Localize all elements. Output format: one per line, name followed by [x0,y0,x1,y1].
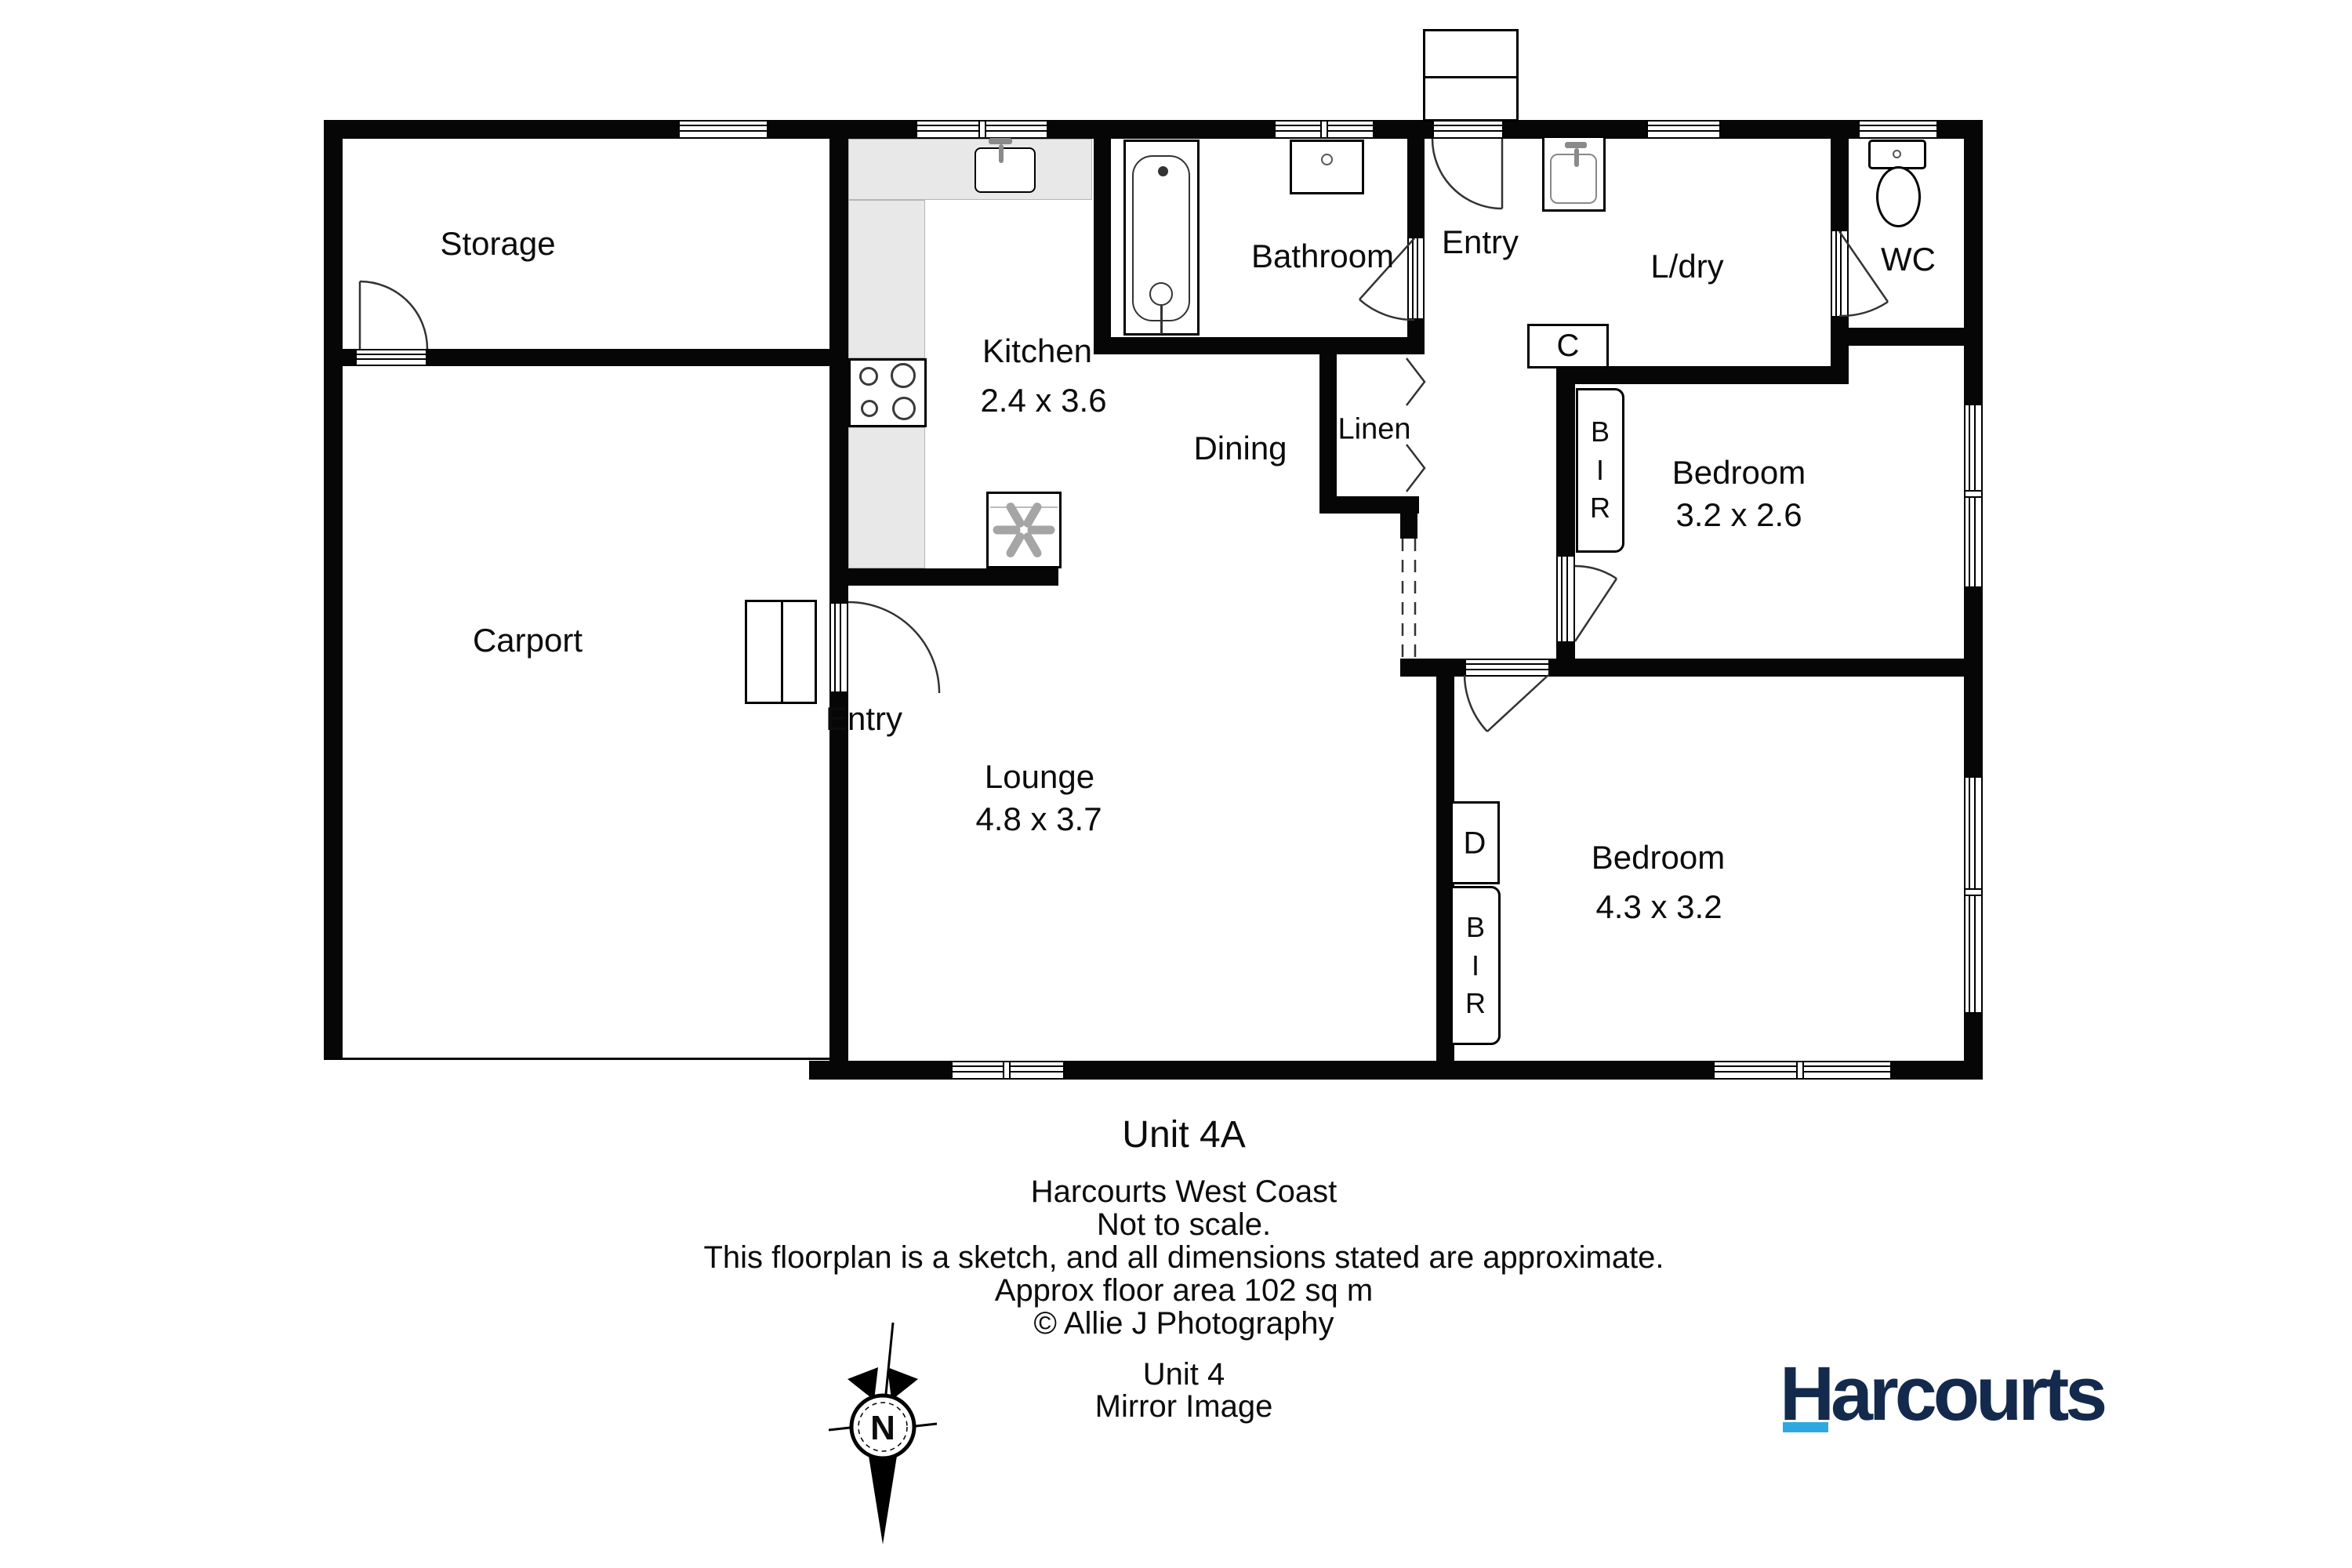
door-frame [1407,237,1425,320]
faucet-icon [1574,148,1579,167]
wall [1556,366,1849,384]
footer-disclaimer: This floorplan is a sketch, and all dime… [703,1240,1664,1276]
wall [1550,659,1983,677]
room-label-entry-top: Entry [1442,223,1519,261]
vanity-drain-icon [1321,154,1333,165]
window [1964,404,1983,588]
kitchen-sink [975,147,1036,193]
room-label-bedroom1: Bedroom [1672,454,1806,492]
wall [324,120,678,139]
wall [809,1061,951,1080]
footer-area: Approx floor area 102 sq m [995,1273,1373,1308]
room-label-kitchen: Kitchen [982,332,1092,370]
faucet-icon [989,138,1012,144]
window-mullion [1965,490,1981,498]
wall [1094,139,1111,354]
window-mullion [1965,888,1981,896]
window-mullion [978,122,986,137]
laundry-tub-basin [1550,154,1597,204]
wall [829,693,848,1061]
room-label-bedroom2: Bedroom [1592,839,1725,877]
window [1646,120,1721,139]
stove-burner [859,367,878,386]
faucet-icon [999,144,1004,163]
hall-opening-dashed [1403,539,1415,659]
kitchen-counter [848,200,925,358]
door-swing-bedroom2 [1465,675,1548,731]
door-frame [1831,230,1849,318]
wall [768,120,916,139]
harcourts-logo-accent-bar [1783,1422,1828,1432]
door-swing-front-entry [1432,139,1502,209]
bath-drain-line [1160,306,1163,334]
room-label-lounge: Lounge [985,758,1094,796]
compass-north-label: N [870,1409,895,1448]
room-label-wc: WC [1881,241,1936,278]
wall [324,120,343,1060]
room-dims-kitchen: 2.4 x 3.6 [980,382,1106,419]
stove-burner [891,363,916,388]
wood-heater [986,492,1062,568]
window [951,1061,1065,1080]
heater-detail-line [990,506,1058,508]
stove-burner [892,397,916,420]
door-frame [829,602,848,693]
closet-c-label: C [1557,328,1580,364]
bath-drain-icon [1149,282,1173,306]
bir-label: BIR [1588,413,1613,528]
toilet-bowl [1876,166,1921,227]
footer-mirror-note: Mirror Image [1095,1389,1273,1425]
room-dims-lounge: 4.8 x 3.7 [975,800,1102,838]
wall [1964,120,1983,404]
footer-unit-title: Unit 4A [1122,1113,1245,1156]
shower-head-icon [1158,166,1168,176]
stove-burner [861,400,878,417]
window [916,120,1048,139]
kitchen-counter [848,427,925,568]
wall [1892,1061,1983,1080]
wall [829,137,848,602]
wall [1400,496,1417,539]
wall [1048,120,1274,139]
room-label-storage: Storage [440,225,555,263]
window [1964,776,1983,1014]
dresser-label: D [1464,826,1486,862]
footer-unit-alt: Unit 4 [1143,1357,1225,1392]
porch-steps [1423,29,1519,122]
floorplan-canvas: C BIR D BIR [0,0,2352,1568]
door-frame [355,349,427,366]
room-label-dining: Dining [1193,430,1287,467]
entry-step-line [781,600,783,704]
door-frame [1556,555,1575,643]
wall [1319,354,1337,514]
wall [1831,328,1983,346]
door-swing-bedroom1 [1575,566,1617,641]
wall [1094,337,1425,354]
window [678,120,768,139]
window-mullion [1796,1062,1804,1078]
room-label-carport: Carport [473,622,583,659]
wall [1065,1061,1713,1080]
footer-agency: Harcourts West Coast [1031,1174,1338,1210]
door-frame [1432,120,1504,139]
stove-cooktop [848,358,927,427]
faucet-icon [1565,142,1587,148]
wall [848,568,1058,586]
door-swing-storage [360,281,427,349]
room-label-laundry: L/dry [1650,248,1723,285]
room-dims-bedroom1: 3.2 x 2.6 [1675,496,1802,534]
bathroom-vanity [1290,140,1364,194]
carport-open-edge [333,1058,829,1060]
door-frame [1465,659,1550,677]
wall [1556,366,1575,555]
room-dims-bedroom2: 4.3 x 3.2 [1595,888,1722,926]
wall [1407,139,1425,237]
room-label-linen: Linen [1338,413,1411,447]
closet-c: C [1527,324,1609,368]
bir-label: BIR [1463,909,1488,1023]
porch-step-line [1423,76,1519,78]
footer-credit: © Allie J Photography [1033,1306,1334,1341]
wall [1831,137,1849,230]
wall [427,349,848,366]
footer-scale-note: Not to scale. [1097,1207,1271,1243]
window [1858,120,1938,139]
room-label-bathroom: Bathroom [1251,238,1394,275]
kitchen-counter [848,139,1092,200]
wall [1964,588,1983,776]
toilet-button-icon [1893,150,1901,158]
wall [1407,320,1425,354]
wall [1721,120,1858,139]
window-mullion [1003,1062,1011,1078]
room-label-entry-side: Entry [826,700,902,738]
door-swing-side-entry [848,602,939,693]
wall [1374,120,1432,139]
wall [1400,659,1465,677]
window [1274,120,1374,139]
window-mullion [1320,122,1328,137]
window [1713,1061,1892,1080]
